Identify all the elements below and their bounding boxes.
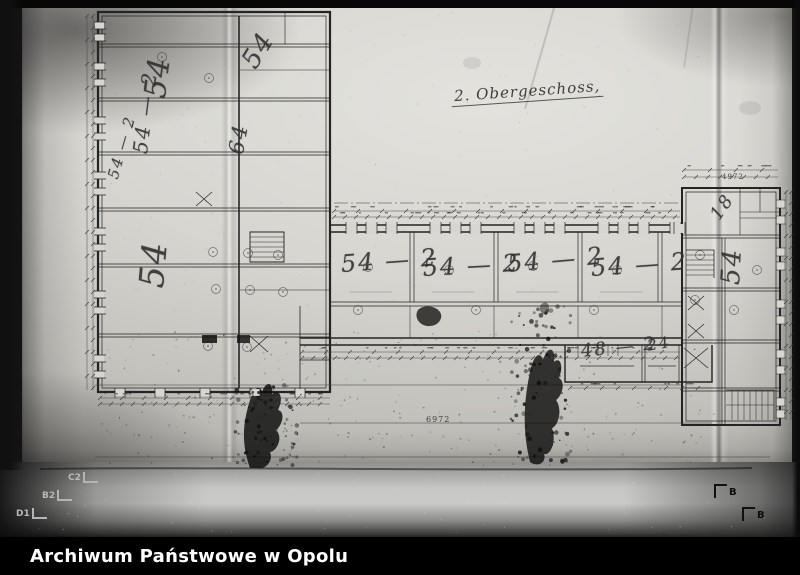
fiducial-label: C2 [68,474,81,483]
fiducial-bracket-icon [32,508,47,519]
archive-caption-bar: Archiwum Państwowe w Opolu [0,537,800,575]
dimension-total-label: 4972 [722,173,744,181]
archival-photo-frame: 2. Obergeschoss, 545454 — 2645454 — 254 … [0,0,800,575]
fiducial-label: B [757,511,765,521]
photo-frame-edge [0,0,800,8]
dimension-total-label: 6972 [426,415,450,424]
archive-caption-text: Archiwum Państwowe w Opolu [30,546,348,567]
backing-surface [0,462,800,537]
scan-area: 2. Obergeschoss, 545454 — 2645454 — 254 … [0,0,800,537]
fiducial-mark: B [742,507,765,521]
room-number-label: 54 [716,247,748,286]
fiducial-mark: B2 [42,490,72,501]
photo-frame-edge [792,0,800,537]
fiducial-bracket-icon [57,490,72,501]
fiducial-mark: C2 [68,472,98,483]
photo-frame-edge [0,0,24,470]
fiducial-label: D1 [16,510,30,519]
fiducial-mark: B [714,484,737,498]
room-number-label: 54 [132,239,176,290]
fiducial-bracket-icon [714,484,727,498]
fiducial-label: B2 [42,492,55,501]
fiducial-mark: D1 [16,508,47,519]
fiducial-label: B [729,488,737,498]
fiducial-bracket-icon [83,472,98,483]
fiducial-bracket-icon [742,507,755,521]
